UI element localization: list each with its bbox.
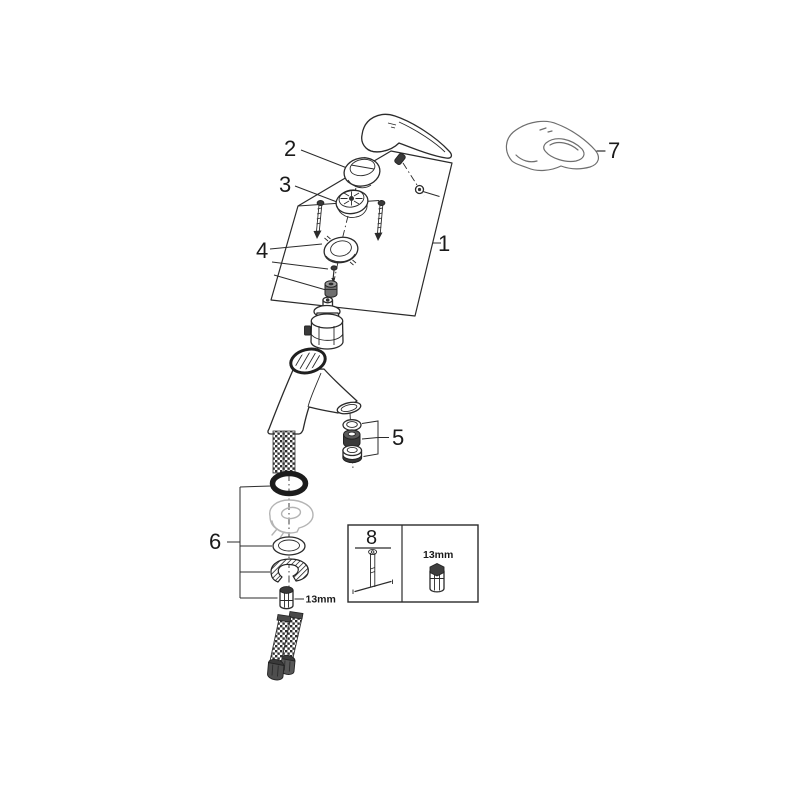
callout-6: 6 (209, 529, 221, 554)
callout-1: 1 (438, 231, 450, 256)
basin-ghost (270, 500, 313, 538)
aerator-assembly (343, 413, 389, 469)
cartridge-screw (331, 266, 337, 283)
callout-8: 8 (366, 527, 377, 549)
lever-handle (362, 114, 452, 158)
escutcheon-ring (322, 234, 360, 266)
fixing-screw-right (375, 201, 385, 242)
supply-hoses (267, 612, 303, 680)
cartridge-adapter (325, 281, 337, 297)
tool-size-label: 13mm (423, 549, 453, 561)
callout-5: 5 (392, 425, 404, 450)
mounting-nut (280, 587, 304, 609)
mounting-clamp (271, 559, 308, 582)
exploded-parts-diagram: 1 2 3 4 5 6 7 8 13mm 13mm (0, 0, 800, 800)
fixing-screw-left (314, 201, 324, 240)
cartridge-stop-ring (334, 188, 370, 218)
part6-bracket (227, 486, 278, 598)
nut-size-label: 13mm (306, 594, 336, 606)
handle-variant (506, 121, 605, 170)
callout-2: 2 (284, 136, 296, 161)
hose-tails-upper (273, 431, 295, 473)
callout-4: 4 (256, 238, 268, 263)
callout-7: 7 (608, 138, 620, 163)
callout-3: 3 (279, 172, 291, 197)
cartridge (305, 297, 344, 349)
handle-set-screw (394, 153, 424, 196)
socket-tool-icon (430, 564, 444, 592)
mounting-washer (273, 537, 305, 555)
